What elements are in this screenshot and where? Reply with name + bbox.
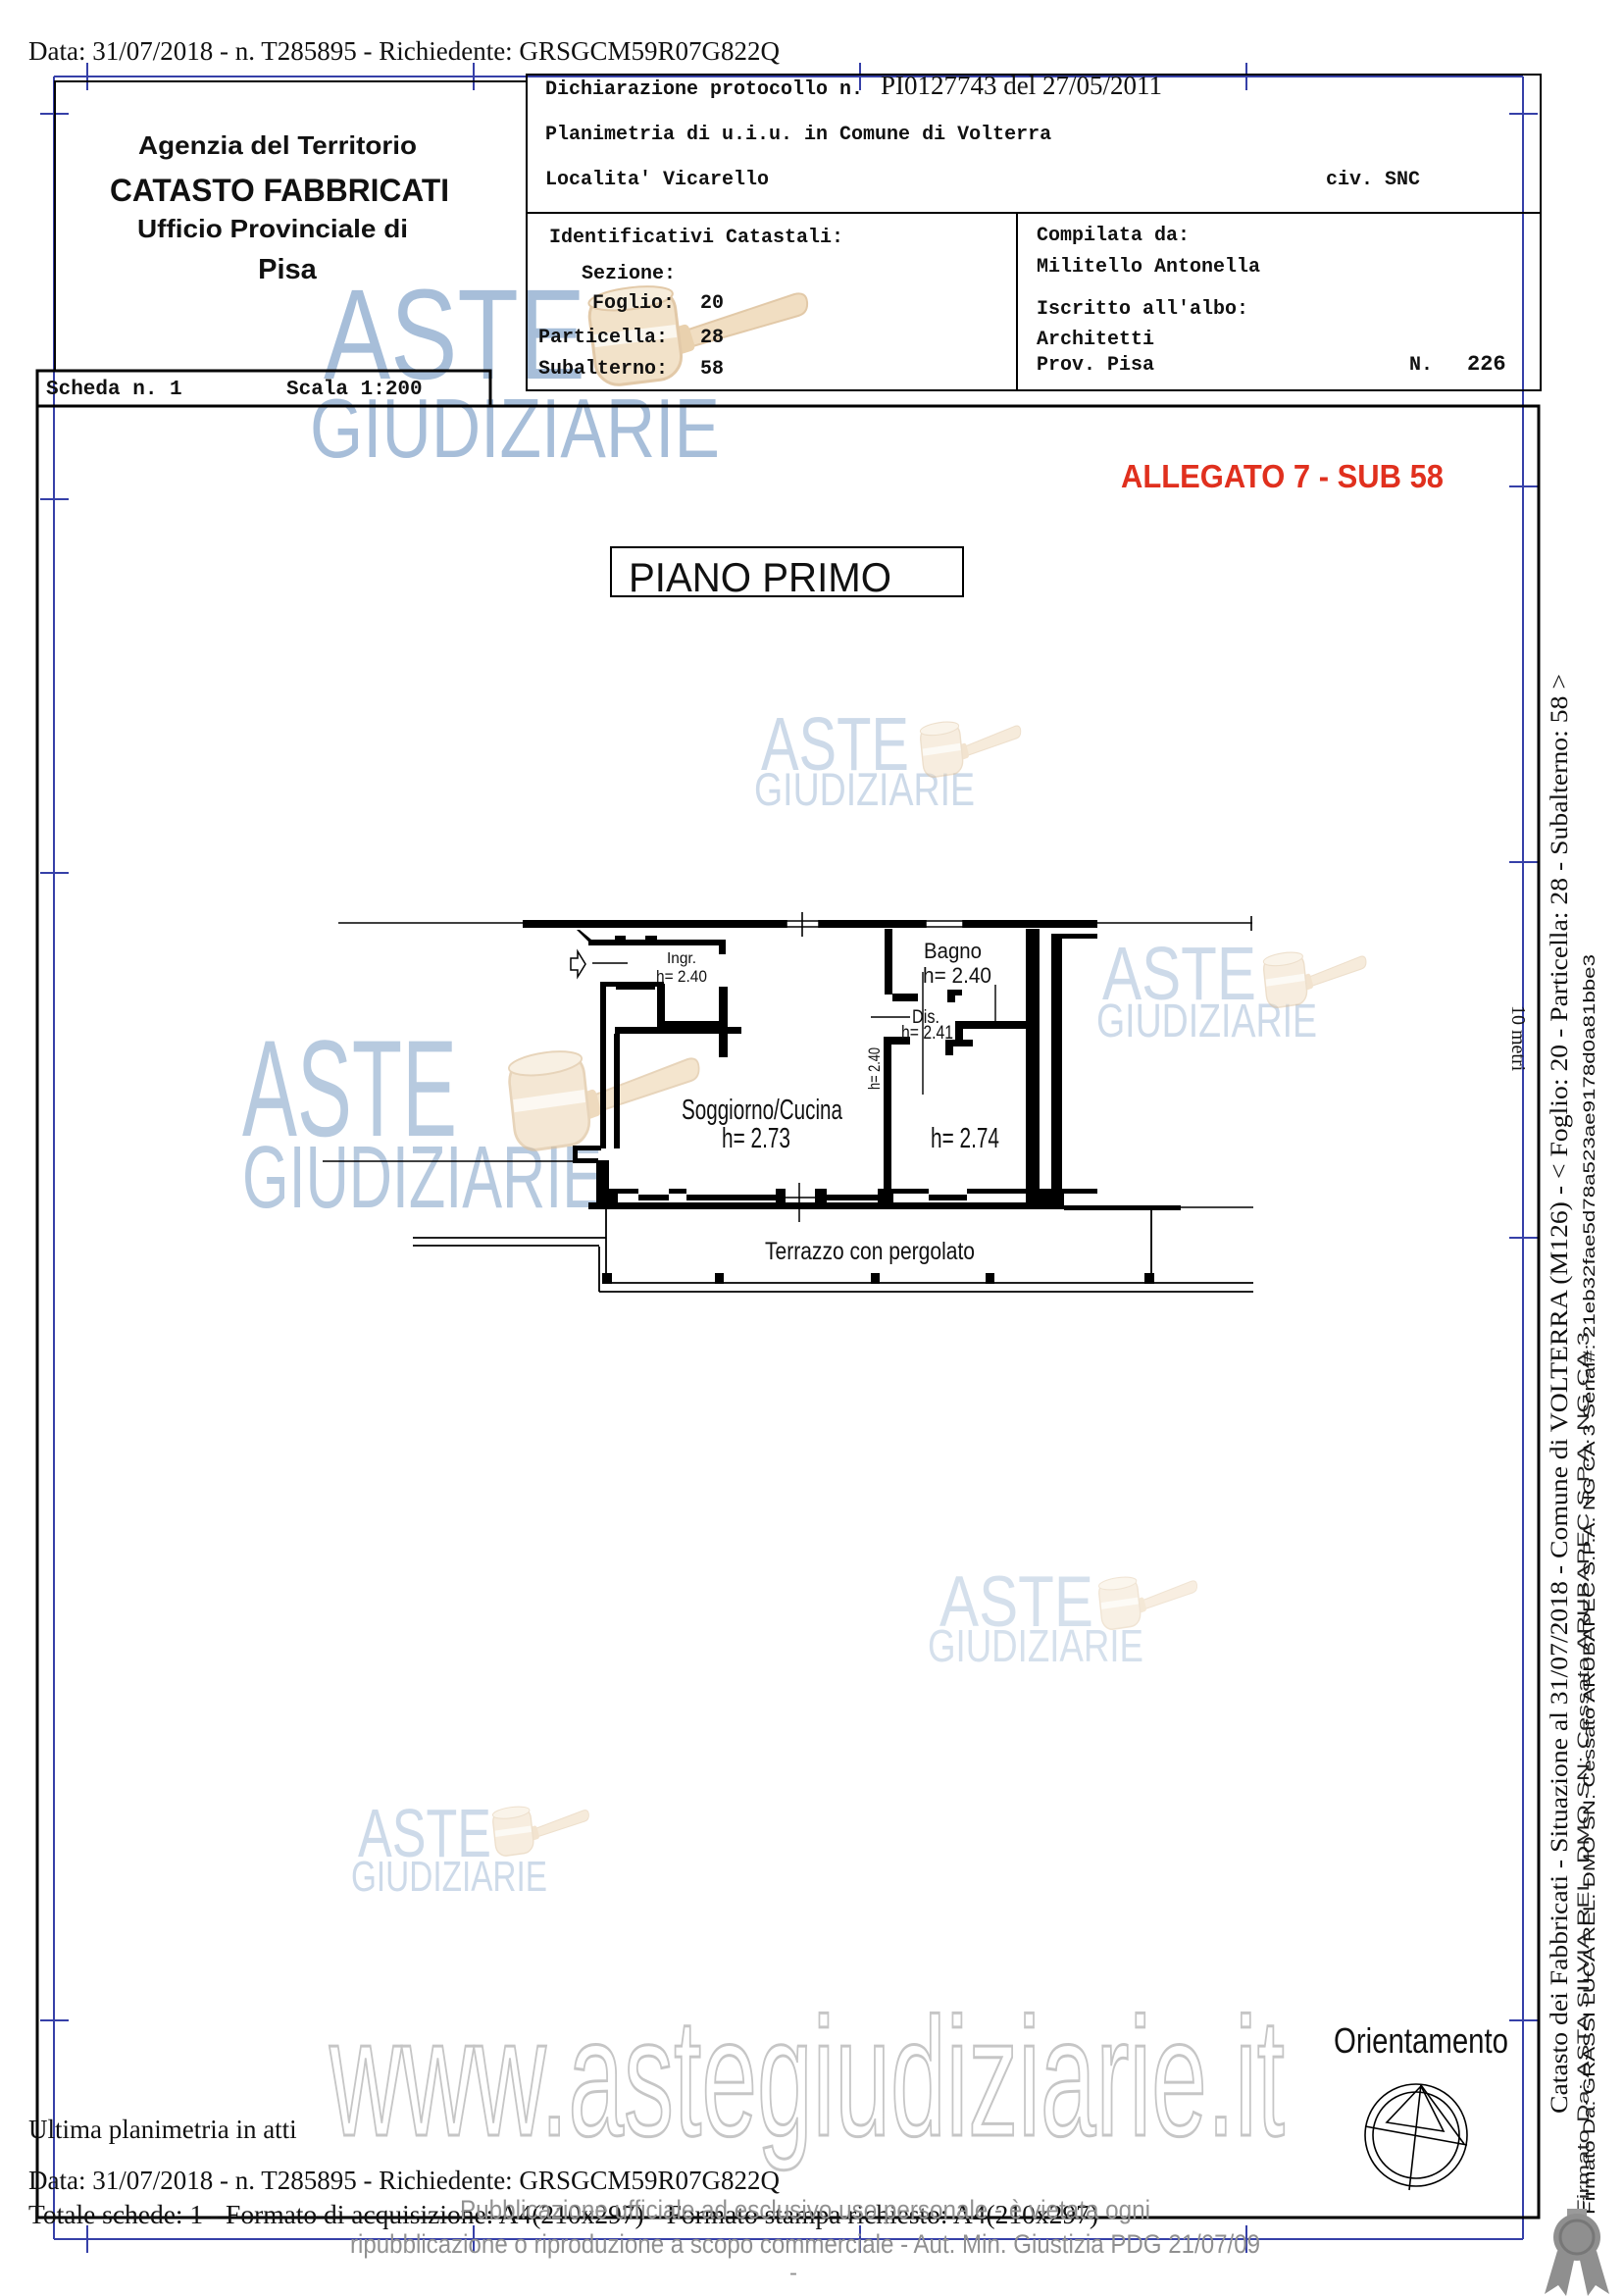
svg-text:h= 2.40: h= 2.40	[923, 963, 991, 988]
svg-text:GIUDIZIARIE: GIUDIZIARIE	[351, 1853, 547, 1901]
svg-text:Militello Antonella: Militello Antonella	[1037, 256, 1260, 279]
svg-text:Iscritto all'albo:: Iscritto all'albo:	[1037, 298, 1248, 321]
svg-text:10 metri: 10 metri	[1507, 1005, 1529, 1072]
svg-text:h= 2.41: h= 2.41	[901, 1023, 953, 1044]
svg-text:ripubblicazione o riproduzione: ripubblicazione o riproduzione a scopo c…	[350, 2229, 1260, 2259]
svg-text:h= 2.40: h= 2.40	[865, 1047, 884, 1090]
svg-text:Compilata da:: Compilata da:	[1037, 225, 1190, 247]
svg-text:Ufficio Provinciale di: Ufficio Provinciale di	[137, 214, 408, 243]
svg-text:PI0127743 del 27/05/2011: PI0127743 del 27/05/2011	[881, 71, 1162, 100]
svg-text:Agenzia del Territorio: Agenzia del Territorio	[138, 130, 417, 160]
svg-text:PIANO PRIMO: PIANO PRIMO	[629, 554, 891, 600]
svg-text:Architetti: Architetti	[1037, 329, 1154, 351]
svg-text:Data: 31/07/2018 - n. T285895: Data: 31/07/2018 - n. T285895 - Richiede…	[28, 36, 780, 66]
svg-text:Localita' Vicarello: Localita' Vicarello	[545, 169, 769, 191]
svg-text:Bagno: Bagno	[924, 939, 982, 963]
svg-text:Prov. Pisa: Prov. Pisa	[1037, 354, 1154, 377]
svg-text:Subalterno:: Subalterno:	[538, 358, 668, 381]
svg-text:Terrazzo con pergolato: Terrazzo con pergolato	[765, 1238, 975, 1265]
svg-text:Planimetria di u.i.u. in Comun: Planimetria di u.i.u. in Comune di Volte…	[545, 124, 1051, 146]
svg-text:-: -	[789, 2260, 797, 2286]
svg-text:Firmato Da: ASTA SILVIA REL. D: Firmato Da: ASTA SILVIA REL. DMO SN: Ces…	[1574, 1332, 1593, 2215]
svg-text:58: 58	[700, 358, 724, 381]
svg-text:28: 28	[700, 327, 724, 349]
svg-text:Ultima planimetria in atti: Ultima planimetria in atti	[28, 2115, 297, 2144]
svg-text:h= 2.73: h= 2.73	[722, 1123, 790, 1154]
svg-text:Foglio:: Foglio:	[592, 292, 675, 315]
svg-text:N.: N.	[1409, 354, 1433, 377]
svg-text:Ingr.: Ingr.	[667, 950, 696, 967]
svg-text:Particella:: Particella:	[538, 327, 668, 349]
svg-text:Scala 1:200: Scala 1:200	[286, 379, 423, 401]
svg-text:Orientamento: Orientamento	[1334, 2020, 1508, 2061]
svg-text:Pubblicazione ufficiale ad esc: Pubblicazione ufficiale ad esclusivo uso…	[460, 2195, 1150, 2224]
svg-text:h= 2.74: h= 2.74	[931, 1123, 999, 1154]
svg-text:20: 20	[700, 292, 724, 315]
svg-text:Soggiorno/Cucina: Soggiorno/Cucina	[682, 1095, 843, 1126]
svg-text:www.astegiudiziarie.it: www.astegiudiziarie.it	[329, 1983, 1285, 2171]
svg-text:CATASTO FABBRICATI: CATASTO FABBRICATI	[110, 173, 449, 208]
svg-text:Scheda n. 1: Scheda n. 1	[46, 379, 182, 401]
svg-text:h= 2.40: h= 2.40	[656, 967, 707, 986]
svg-text:Pisa: Pisa	[258, 254, 318, 285]
svg-text:ALLEGATO 7 - SUB 58: ALLEGATO 7 - SUB 58	[1121, 458, 1444, 494]
svg-text:Sezione:: Sezione:	[582, 263, 676, 285]
svg-text:Identificativi Catastali:: Identificativi Catastali:	[549, 227, 843, 249]
svg-text:civ. SNC: civ. SNC	[1326, 169, 1420, 191]
svg-text:Dichiarazione protocollo n.: Dichiarazione protocollo n.	[545, 78, 863, 101]
svg-text:Catasto dei Fabbricati - Situa: Catasto dei Fabbricati - Situazione al 3…	[1547, 674, 1573, 2114]
svg-text:Data: 31/07/2018 - n. T285895: Data: 31/07/2018 - n. T285895 - Richiede…	[28, 2166, 780, 2195]
svg-text:226: 226	[1467, 352, 1506, 377]
